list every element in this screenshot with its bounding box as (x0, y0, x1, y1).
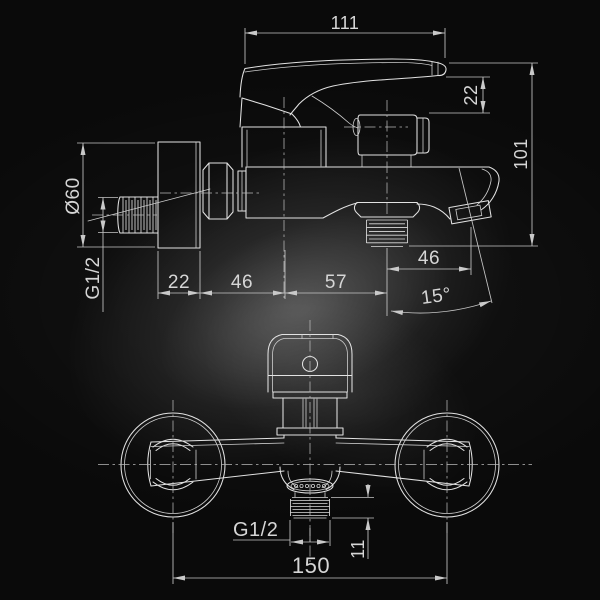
diverter-knob (344, 100, 429, 167)
dim-flange-centers-label: 150 (292, 553, 330, 578)
technical-drawing: 111 22 101 Ø60 G1/2 (0, 0, 600, 600)
dim-overall-height-label: 101 (511, 138, 531, 170)
dim-inlet-to-center-label: 46 (231, 272, 253, 293)
dim-outlet-thread-label: G1/2 (233, 519, 278, 541)
faucet-body (240, 96, 489, 218)
side-view: 111 22 101 Ø60 G1/2 (63, 13, 538, 316)
front-view: G1/2 11 150 (98, 320, 532, 584)
dim-thread-length-label: 11 (348, 539, 368, 559)
dim-flange-diameter-label: Ø60 (63, 177, 84, 214)
dim-outlet-to-spout-label: 46 (418, 248, 440, 269)
dim-spout-angle-label: 15° (420, 284, 453, 309)
spout (417, 167, 499, 224)
dimensions-top-view: 111 22 101 Ø60 G1/2 (63, 13, 538, 316)
left-arm (148, 438, 284, 486)
dim-handle-drop-label: 22 (461, 84, 481, 105)
dim-wall-offset-label: 22 (168, 272, 190, 293)
hex-nut (203, 163, 246, 219)
drawing-canvas: 111 22 101 Ø60 G1/2 (0, 0, 600, 600)
dim-inlet-thread-label: G1/2 (83, 256, 104, 299)
right-arm (336, 438, 472, 486)
dim-overall-width-label: 111 (331, 13, 360, 33)
dim-center-to-outlet-label: 57 (325, 272, 347, 293)
